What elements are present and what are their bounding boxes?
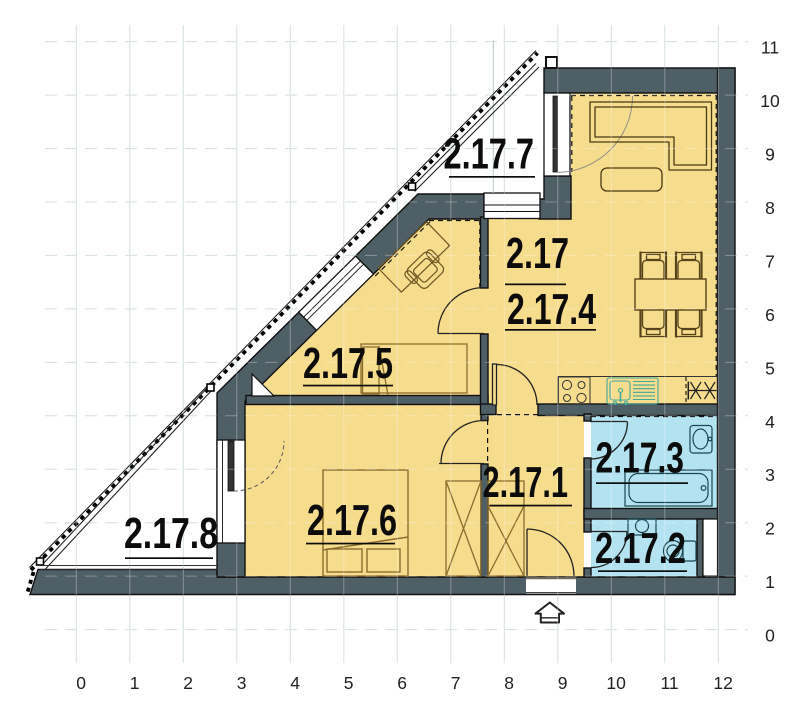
svg-text:9: 9 [765,145,775,165]
svg-text:2.17.8: 2.17.8 [124,509,218,558]
svg-text:10: 10 [760,91,780,111]
svg-text:6: 6 [765,305,775,325]
svg-text:7: 7 [765,251,775,271]
svg-text:2.17.3: 2.17.3 [596,434,685,483]
svg-text:0: 0 [76,673,86,693]
svg-text:4: 4 [290,673,300,693]
svg-text:1: 1 [765,572,775,592]
svg-text:11: 11 [661,673,679,693]
svg-text:8: 8 [765,198,775,218]
svg-text:2: 2 [765,519,775,539]
svg-text:10: 10 [606,673,626,693]
svg-text:3: 3 [765,465,775,485]
svg-text:2.17.6: 2.17.6 [307,496,397,545]
svg-text:5: 5 [765,358,775,378]
svg-text:2.17.1: 2.17.1 [483,458,569,507]
svg-text:2.17.5: 2.17.5 [303,339,393,388]
svg-text:9: 9 [558,673,568,693]
svg-text:4: 4 [765,412,775,432]
svg-text:11: 11 [761,38,779,58]
svg-text:8: 8 [504,673,514,693]
svg-text:7: 7 [451,673,461,693]
svg-text:5: 5 [344,673,354,693]
svg-text:12: 12 [713,673,732,693]
svg-text:2.17.4: 2.17.4 [507,285,596,334]
svg-text:1: 1 [130,673,140,693]
svg-text:6: 6 [397,673,407,693]
svg-text:2.17: 2.17 [506,229,569,278]
svg-text:2.17.7: 2.17.7 [444,130,535,179]
svg-text:3: 3 [237,673,247,693]
svg-text:2.17.2: 2.17.2 [595,524,686,573]
svg-text:0: 0 [765,626,775,646]
svg-text:2: 2 [183,673,193,693]
